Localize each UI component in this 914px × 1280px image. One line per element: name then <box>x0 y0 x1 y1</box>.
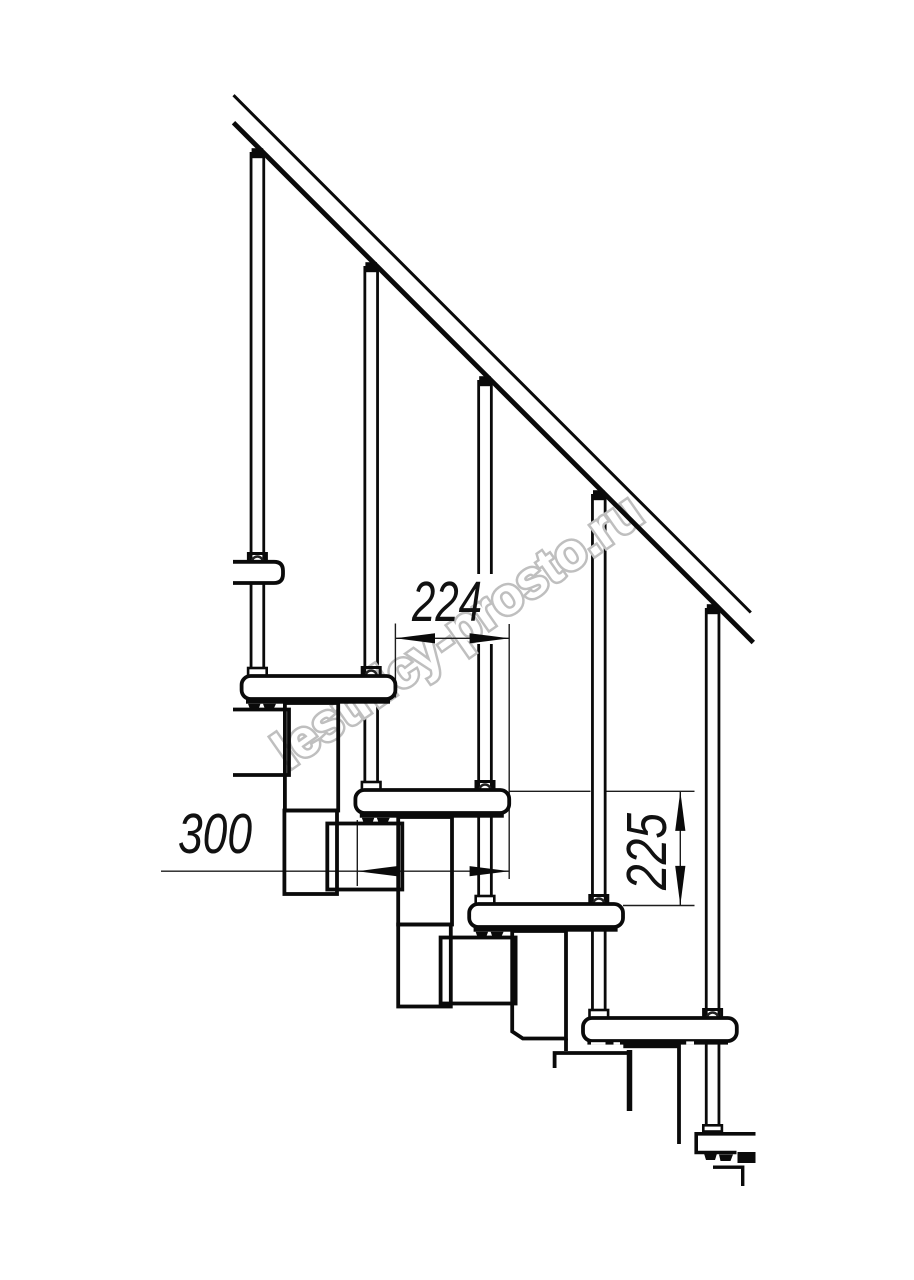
svg-text:224: 224 <box>411 570 482 634</box>
svg-text:225: 225 <box>615 813 679 891</box>
svg-text:300: 300 <box>178 802 252 866</box>
